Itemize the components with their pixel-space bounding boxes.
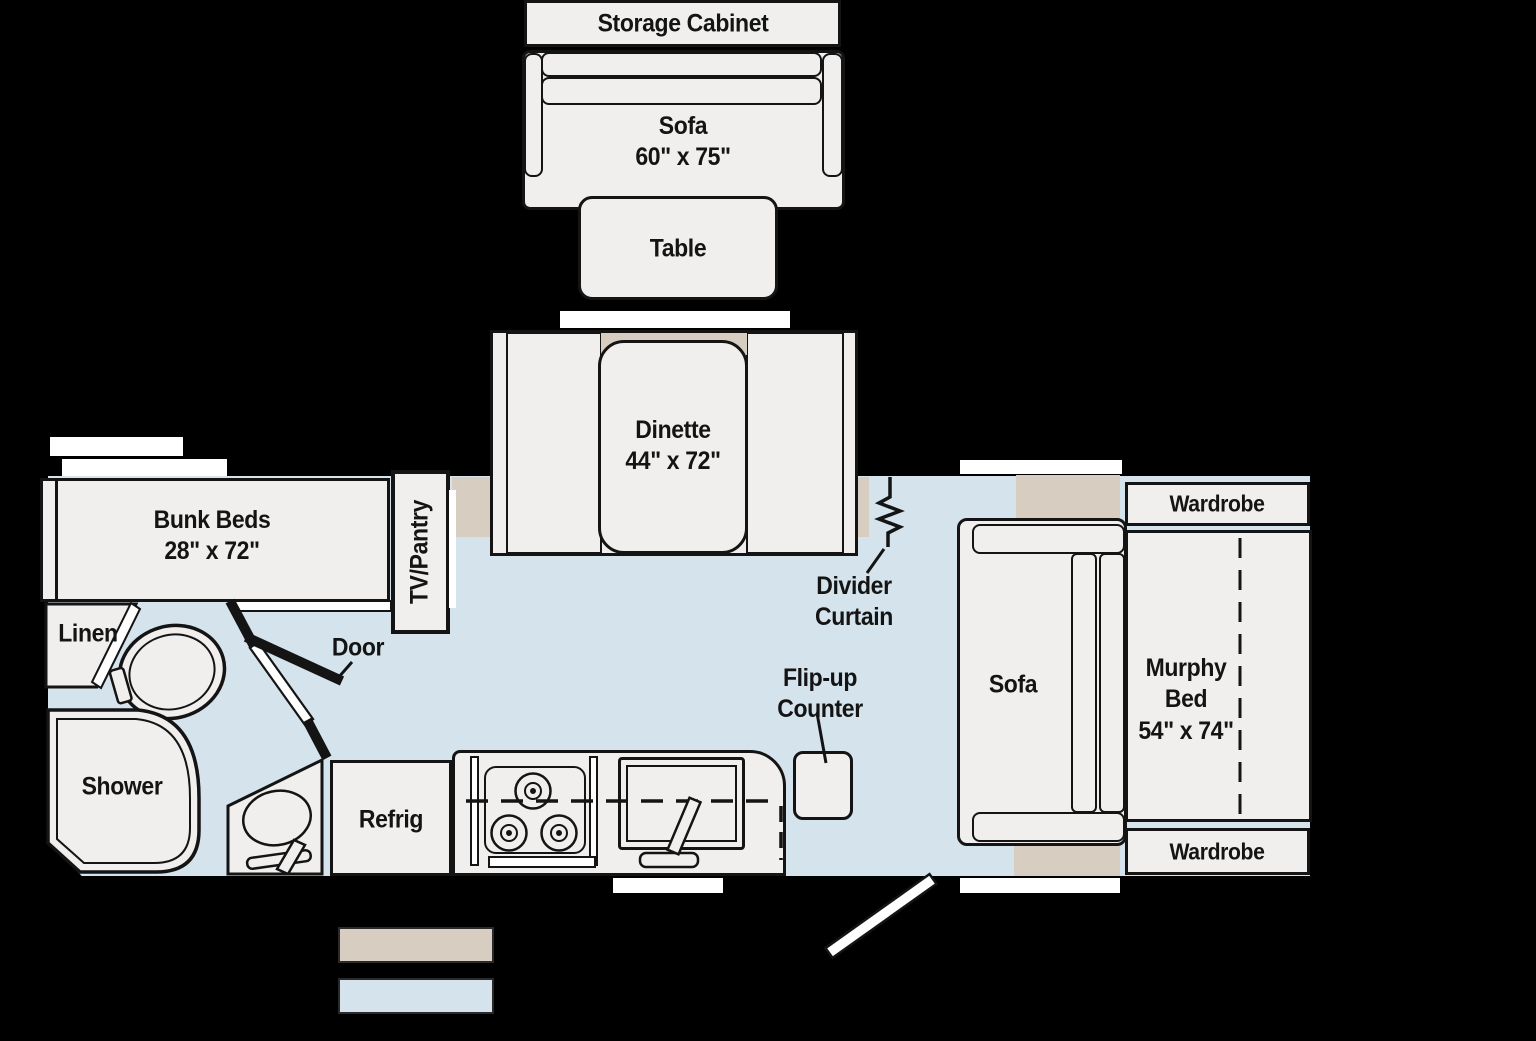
window-below-sofa (960, 878, 1120, 893)
window-below-kitchen (613, 878, 723, 893)
dinette-label: Dinette 44" x 72" (625, 415, 720, 478)
sofa-top-armrest-right (822, 53, 843, 177)
bunk-beds-label: Bunk Beds 28" x 72" (154, 505, 271, 568)
legend-floor-swatch (338, 978, 494, 1014)
slide-marker-dinette-left (452, 477, 490, 537)
table-label: Table (650, 233, 707, 264)
interior-wall-strip (230, 600, 392, 612)
storage-cabinet-label: Storage Cabinet (598, 8, 769, 39)
tv-pantry-label: TV/Pantry (404, 500, 435, 604)
sofa-top-label: Sofa 60" x 75" (635, 111, 730, 174)
tv-pantry-slide-rail (449, 490, 456, 608)
dinette-bench-left (506, 332, 602, 554)
flip-up-counter-label: Flip-up Counter (777, 663, 863, 726)
sofa-right-armrest-top (972, 524, 1125, 554)
wardrobe-top-label: Wardrobe (1169, 490, 1264, 519)
sofa-right-label: Sofa (989, 669, 1037, 700)
front-window-lower (62, 459, 227, 476)
linen-label: Linen (58, 618, 117, 649)
cooktop-rail-right (589, 756, 598, 866)
kitchen-sink-basin (626, 765, 737, 842)
slide-marker-dinette-right (858, 477, 869, 537)
floor-plan: Storage Cabinet Sofa 60" x 75" Table Din… (0, 0, 1536, 1041)
window-above-sofa (960, 460, 1122, 474)
cooktop-front-rail (488, 856, 596, 868)
wardrobe-bottom-label: Wardrobe (1169, 838, 1264, 867)
sofa-top-armrest-left (524, 53, 543, 177)
bunk-beds-headboard-line (55, 481, 58, 599)
shower-label: Shower (82, 771, 163, 802)
cooktop-rail-left (470, 756, 479, 866)
legend-slideout-swatch (338, 927, 494, 963)
sofa-right-back-cushion-1 (1071, 553, 1097, 813)
divider-curtain-label: Divider Curtain (815, 571, 893, 634)
cooktop (484, 766, 586, 854)
flip-up-counter (793, 751, 853, 820)
refrig-label: Refrig (359, 804, 423, 835)
door-label: Door (332, 632, 384, 663)
front-window-upper (50, 437, 183, 456)
sofa-right-armrest-bottom (972, 812, 1125, 842)
dinette-bench-right (746, 332, 844, 554)
sofa-right-back-cushion-2 (1099, 553, 1125, 813)
murphy-bed-label: Murphy Bed 54" x 74" (1138, 653, 1233, 747)
sofa-top-back-cushion-2 (541, 77, 822, 105)
sofa-top-back-cushion-1 (541, 52, 822, 77)
window-above-dinette (560, 311, 790, 328)
